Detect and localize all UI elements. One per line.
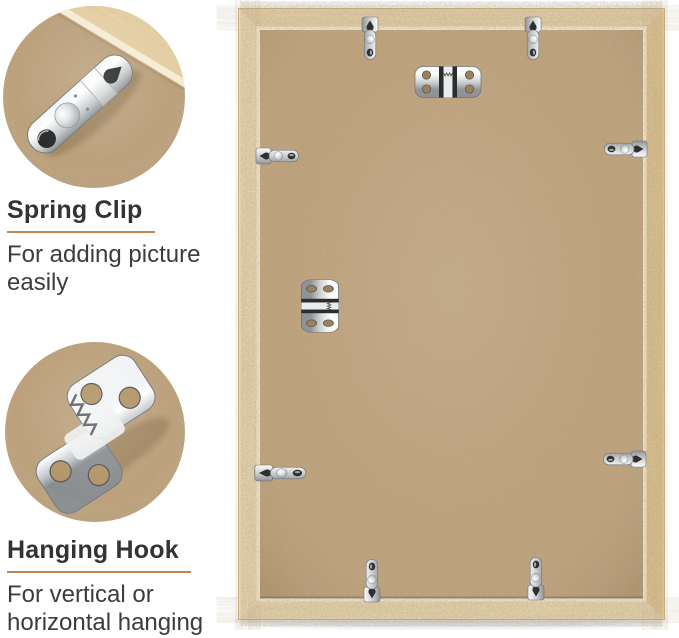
spring-clip-icon [605, 141, 648, 157]
callout-title: Spring Clip [7, 196, 155, 233]
callout-spring-clip: Spring Clip For adding picture easily [7, 196, 202, 298]
callout-hanging-hook: Hanging Hook For vertical or horizontal … [7, 536, 259, 638]
spring-clip-icon [364, 560, 380, 603]
spring-clip-closeup-photo [1, 0, 279, 192]
hanging-hook-closeup-photo [4, 341, 186, 523]
callout-description: For adding picture easily [7, 241, 202, 298]
spring-clip-icon [604, 451, 647, 467]
callout-title: Hanging Hook [7, 536, 191, 573]
hanging-hook-icon [301, 280, 338, 333]
frame-back-photo [233, 8, 669, 628]
hanging-hook-icon [415, 67, 481, 98]
spring-clip-icon [255, 465, 306, 481]
spring-clip-icon [525, 17, 541, 60]
spring-clip-icon [256, 148, 299, 164]
callout-description: For vertical or horizontal hanging [7, 581, 259, 638]
spring-clip-icon [528, 558, 544, 601]
spring-clip-icon [362, 17, 378, 60]
